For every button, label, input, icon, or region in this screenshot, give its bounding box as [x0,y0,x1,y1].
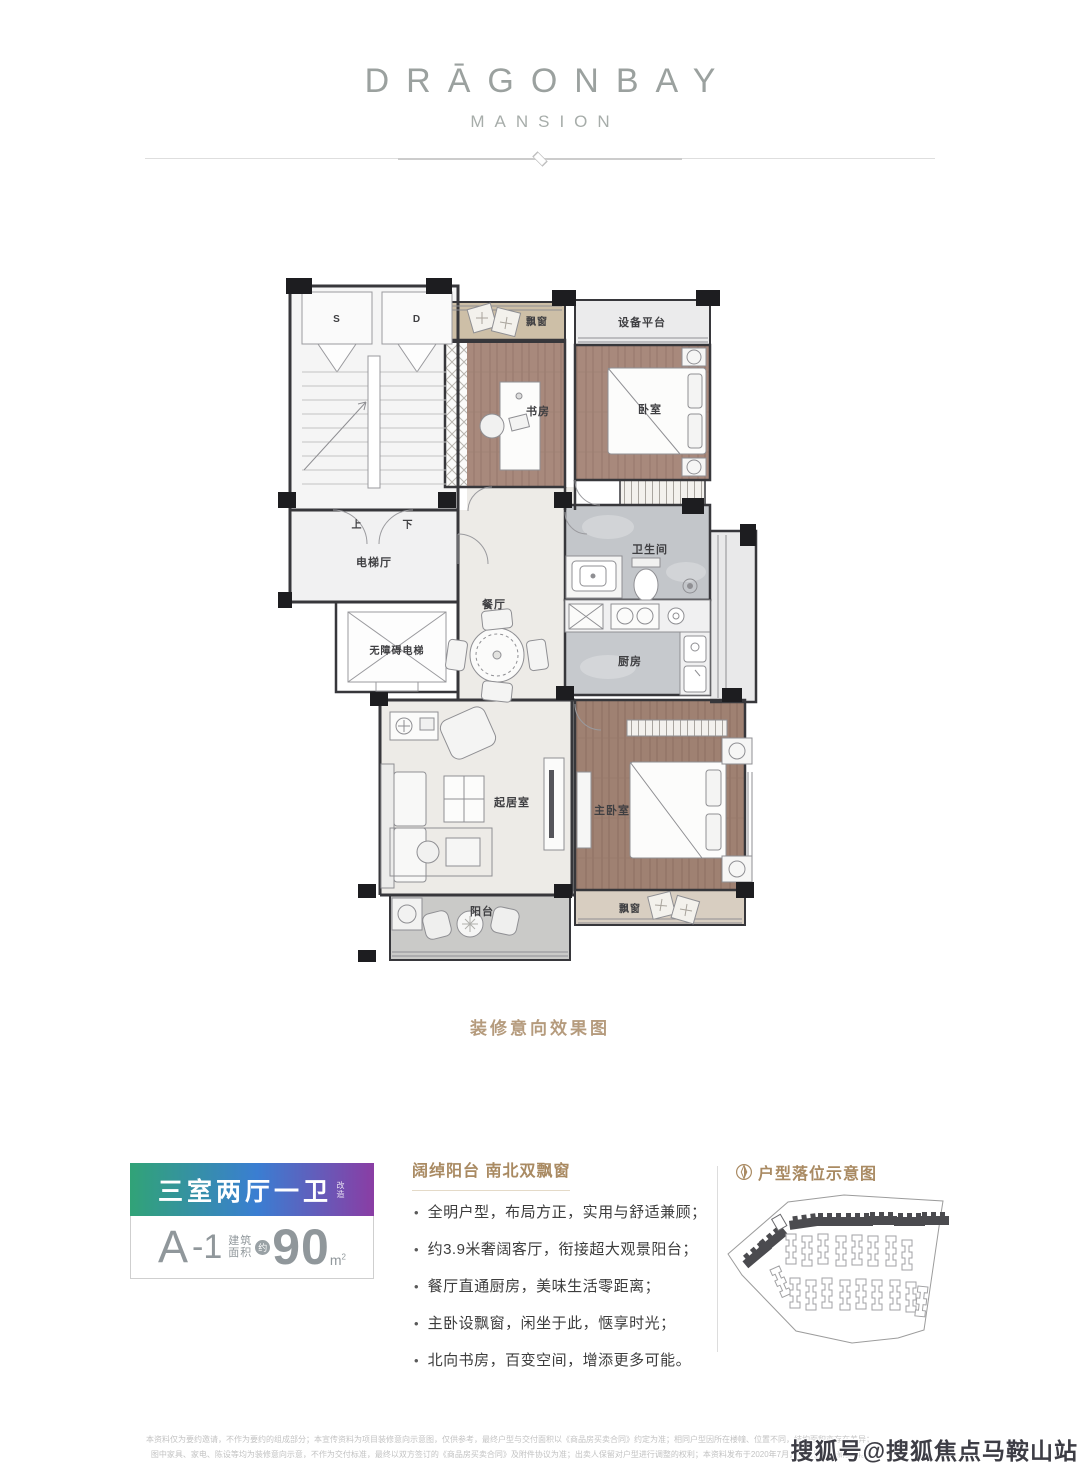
room-label-master: 主卧室 [594,803,630,817]
page: DRĀGONBAY MANSION [0,0,1080,1477]
unit-name: A [158,1221,190,1273]
unit-badge: 三室两厅一卫 改造 A -1 建筑 面积 约 90 m2 [130,1163,374,1279]
feature-bullet: •约3.9米奢阔客厅，衔接超大观景阳台； [412,1240,718,1277]
room-label-living: 起居室 [493,795,530,809]
bullet-dot-icon: • [414,1351,419,1371]
room-label-equipment: 设备平台 [618,315,666,329]
plan-caption: 装修意向效果图 [0,1014,1080,1039]
room-label-balcony: 阳台 [470,904,494,918]
approx-badge: 约 [255,1240,270,1255]
room-label-kitchen: 厨房 [618,654,642,668]
bullet-dot-icon: • [414,1277,419,1297]
feature-text: 餐厅直通厨房，美味生活零距离； [428,1277,661,1297]
unit-type-banner: 三室两厅一卫 改造 [130,1163,374,1216]
features-section: 阔绰阳台 南北双飘窗 •全明户型，布局方正，实用与舒适兼顾； •约3.9米奢阔客… [412,1157,718,1388]
unit-suffix: -1 [192,1228,222,1267]
brand-logo-subtitle: MANSION [0,112,1080,132]
area-unit-base: m [330,1252,342,1268]
brand-logo-title: DRĀGONBAY [0,62,1080,101]
features-list: •全明户型，布局方正，实用与舒适兼顾； •约3.9米奢阔客厅，衔接超大观景阳台；… [412,1203,718,1388]
site-plan-diagram [712,1190,1012,1362]
feature-text: 北向书房，百变空间，增添更多可能。 [428,1351,692,1371]
ornament-divider [145,158,935,159]
bullet-dot-icon: • [414,1203,419,1223]
sitemap-heading-row: 户型落位示意图 [735,1160,877,1184]
area-unit: m2 [330,1252,346,1268]
feature-bullet: •主卧设飘窗，闲坐于此，惬享时光； [412,1314,718,1351]
room-label-elevator-hall: 电梯厅 [356,555,392,569]
feature-text: 主卧设飘窗，闲坐于此，惬享时光； [428,1314,676,1334]
feature-bullet: •北向书房，百变空间，增添更多可能。 [412,1351,718,1388]
area-label-line2: 面积 [228,1247,252,1259]
area-label-line1: 建筑 [228,1235,252,1247]
divider-diamond-icon [532,151,548,167]
room-label-bay-top: 飘窗 [526,315,548,328]
sitemap-heading: 户型落位示意图 [758,1160,877,1184]
room-label-accessible-elevator: 无障碍电梯 [369,644,425,657]
feature-bullet: •全明户型，布局方正，实用与舒适兼顾； [412,1203,718,1240]
unit-area-box: A -1 建筑 面积 约 90 m2 [130,1216,374,1279]
room-label-study: 书房 [526,404,550,418]
bullet-dot-icon: • [414,1240,419,1260]
room-label-d: D [413,314,421,325]
feature-text: 约3.9米奢阔客厅，衔接超大观景阳台； [428,1240,698,1260]
area-unit-sup: 2 [342,1252,346,1261]
area-value: 90 [272,1218,330,1276]
stair-label-down: 下 [403,519,414,531]
room-label-bay-bottom: 飘窗 [619,902,641,915]
room-label-s: S [333,314,341,325]
watermark: 搜狐号@搜狐焦点马鞍山站 [791,1432,1078,1466]
room-label-dining: 餐厅 [481,597,506,611]
stair-label-up: 上 [352,518,363,531]
features-heading: 阔绰阳台 南北双飘窗 [412,1157,570,1191]
compass-icon [735,1163,753,1181]
floorplan: S D 上 下 电梯厅 无障碍电梯 飘窗 设备平台 书房 卧室 卫生间 厨房 餐… [278,272,768,1002]
unit-type-text: 三室两厅一卫 [158,1172,332,1208]
feature-text: 全明户型，布局方正，实用与舒适兼顾； [428,1203,707,1223]
unit-type-note: 改造 [335,1181,346,1199]
room-label-bathroom: 卫生间 [632,542,668,556]
feature-bullet: •餐厅直通厨房，美味生活零距离； [412,1277,718,1314]
area-label: 建筑 面积 [228,1235,252,1259]
bullet-dot-icon: • [414,1314,419,1334]
room-label-bedroom: 卧室 [638,402,662,416]
